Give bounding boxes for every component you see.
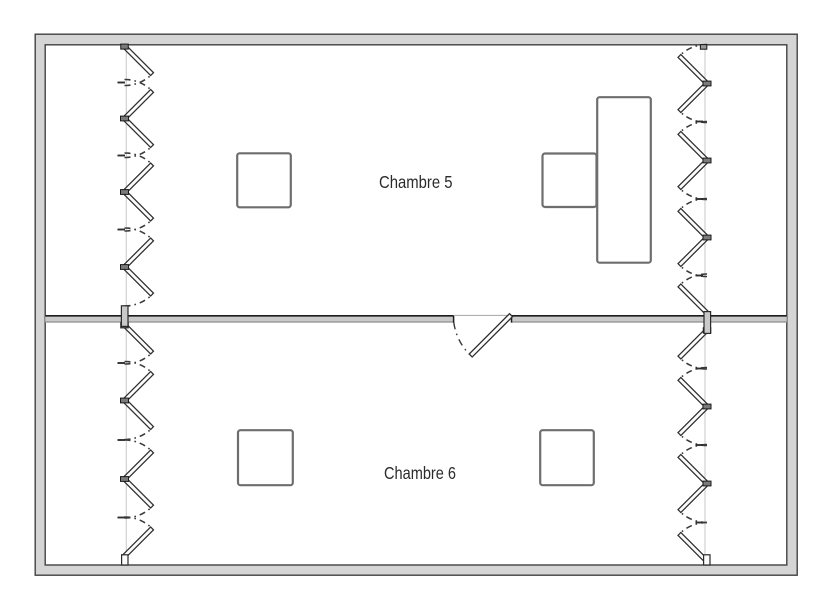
svg-text:Chambre 5: Chambre 5: [379, 172, 453, 192]
svg-text:Chambre 6: Chambre 6: [384, 463, 456, 483]
